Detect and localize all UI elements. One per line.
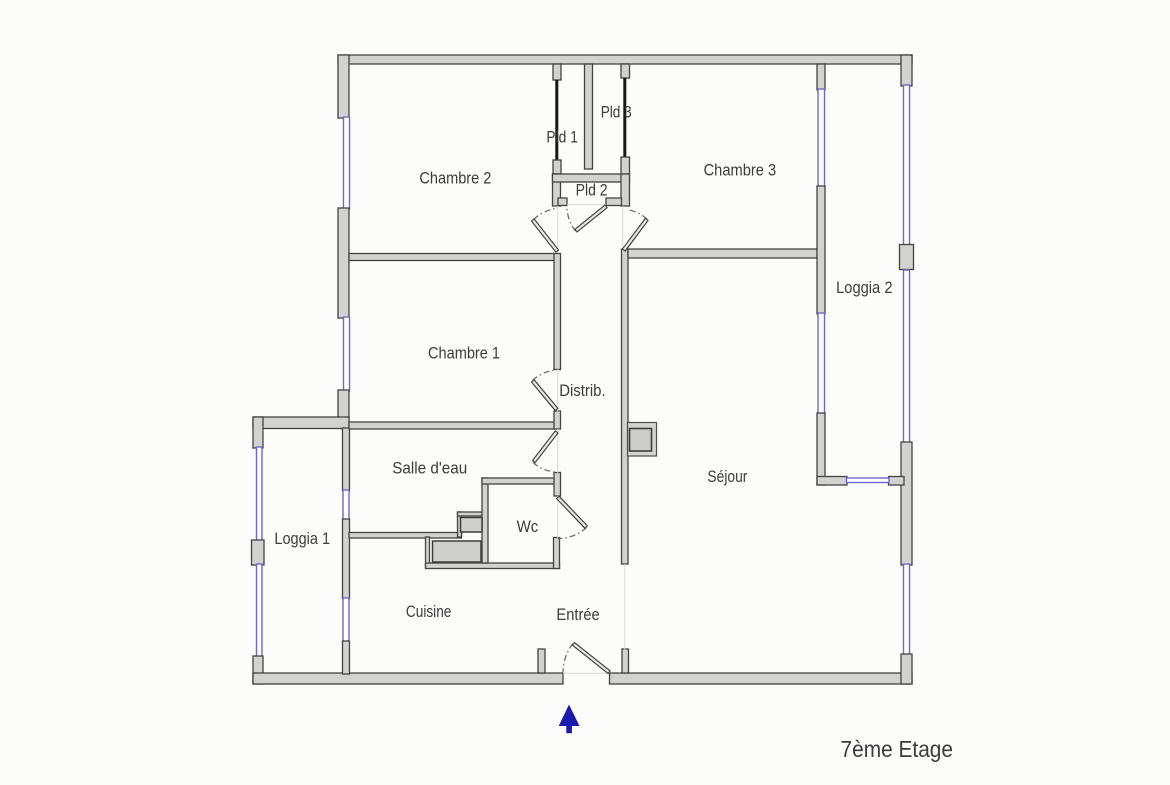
- svg-text:Salle d'eau: Salle d'eau: [392, 460, 467, 478]
- svg-text:Chambre 1: Chambre 1: [428, 345, 500, 363]
- svg-text:Distrib.: Distrib.: [559, 382, 605, 400]
- svg-text:Loggia 1: Loggia 1: [274, 530, 330, 548]
- svg-text:Wc: Wc: [517, 518, 539, 536]
- svg-text:Pld 2: Pld 2: [576, 182, 608, 200]
- svg-text:Loggia 2: Loggia 2: [836, 279, 892, 297]
- svg-text:Pld 3: Pld 3: [601, 104, 632, 122]
- svg-text:Chambre 2: Chambre 2: [419, 169, 491, 187]
- svg-text:Entrée: Entrée: [556, 606, 599, 624]
- svg-text:Cuisine: Cuisine: [406, 603, 452, 621]
- svg-text:Séjour: Séjour: [707, 468, 747, 486]
- svg-text:Pld 1: Pld 1: [546, 129, 578, 147]
- svg-text:Chambre 3: Chambre 3: [704, 162, 777, 180]
- svg-text:7ème Etage: 7ème Etage: [841, 736, 954, 762]
